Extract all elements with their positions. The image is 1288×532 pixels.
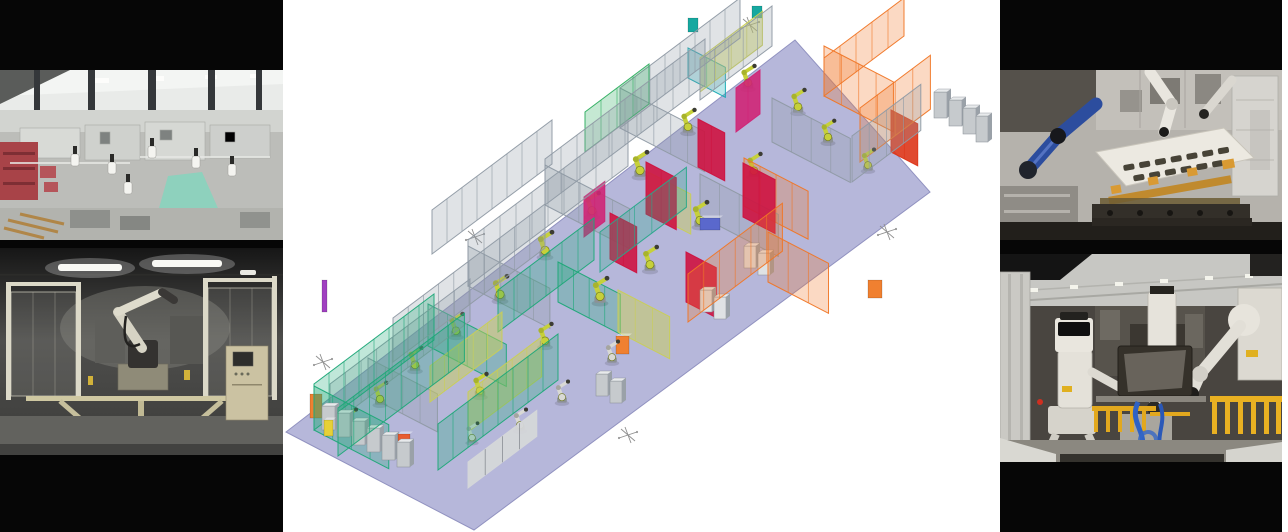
cad-axis-star xyxy=(618,427,638,443)
right-photo-column xyxy=(1000,0,1282,532)
cad-cabinet xyxy=(382,432,399,460)
cad-cabinet xyxy=(596,371,612,396)
photo-real-line-overview xyxy=(0,70,283,240)
letterbox-bar-left-bottom xyxy=(0,455,283,532)
cad-axis-star xyxy=(313,354,333,370)
cad-cabinet xyxy=(976,113,992,142)
control-cabinet xyxy=(226,346,268,420)
digital-twin-composite-figure xyxy=(0,0,1288,532)
cad-items xyxy=(286,0,992,530)
photo-side-panel-art xyxy=(1000,254,1282,462)
letterbox-bar-left-top xyxy=(0,0,283,70)
photo-robot-cell-art xyxy=(0,248,283,455)
photo-real-line-overview-art xyxy=(0,70,283,240)
left-photo-column xyxy=(0,0,283,532)
fence-rail xyxy=(140,156,270,158)
cad-part xyxy=(322,278,330,313)
signal-light xyxy=(1037,399,1043,405)
cad-cabinet xyxy=(934,89,951,118)
robot-head-face xyxy=(1058,322,1090,336)
cad-part xyxy=(868,278,885,299)
letterbox-bar-right-middle xyxy=(1000,240,1282,254)
photo-roof-frame-art xyxy=(1000,70,1282,240)
letterbox-bar-right-top xyxy=(1000,0,1282,70)
left-silver-fence xyxy=(1000,272,1030,442)
photo-robot-cell xyxy=(0,248,283,455)
cabinet-screen xyxy=(233,352,253,366)
letterbox-bar-left-middle xyxy=(0,240,283,248)
left-fence xyxy=(6,282,81,400)
letterbox-bar-right-bottom xyxy=(1000,462,1282,532)
cad-axis-star xyxy=(877,224,897,240)
right-cabinets xyxy=(1232,76,1278,196)
car-side-panel-fixture xyxy=(1118,346,1192,396)
cad-part xyxy=(700,216,723,231)
photo-side-panel-station xyxy=(1000,254,1282,462)
cad-cabinet xyxy=(610,378,626,403)
photo-roof-frame-welding xyxy=(1000,70,1282,240)
cad-cabinet xyxy=(397,439,414,467)
